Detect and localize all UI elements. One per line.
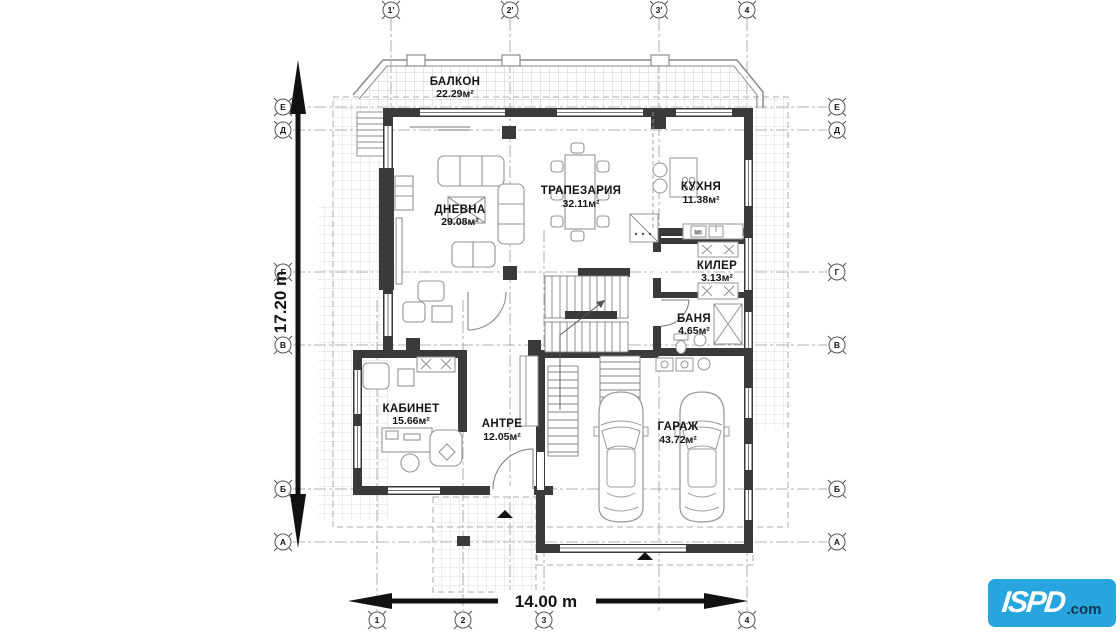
svg-text:1': 1'	[388, 5, 395, 15]
room-label-dining: ТРАПЕЗАРИЯ	[541, 185, 622, 197]
corner-desk	[430, 430, 462, 466]
balcony-structure	[353, 55, 763, 156]
room-label-garage: ГАРАЖ	[658, 421, 699, 433]
floor-plan-canvas: мс	[0, 0, 1120, 632]
svg-text:29.08м²: 29.08м²	[441, 216, 479, 228]
svg-text:Д: Д	[834, 125, 840, 135]
arrowhead-left	[348, 593, 392, 609]
svg-text:12.05м²: 12.05м²	[483, 431, 521, 443]
svg-text:Д: Д	[280, 125, 286, 135]
grid-marker: 4	[738, 611, 756, 629]
room-label-kitchen: КУХНЯ	[681, 181, 721, 193]
room-label-balcony: БАЛКОН	[430, 76, 480, 88]
svg-text:4: 4	[745, 5, 750, 15]
grid-marker: 2	[454, 611, 472, 629]
armchair	[363, 363, 389, 389]
car	[675, 392, 729, 522]
svg-text:11.38м²: 11.38м²	[683, 194, 720, 206]
svg-text:4: 4	[745, 615, 750, 625]
balcony-steps	[357, 112, 385, 156]
svg-text:2: 2	[461, 615, 466, 625]
logo[interactable]: ISPD .com	[988, 579, 1116, 627]
logo-suffix: .com	[1067, 601, 1102, 618]
grid-marker: 1	[368, 611, 386, 629]
garage-entrance-arrow	[637, 552, 653, 560]
svg-text:3.13м²: 3.13м²	[701, 272, 733, 284]
grid-marker: Е	[274, 98, 292, 116]
logo-brand: ISPD	[1001, 588, 1066, 618]
grid-marker: 3'	[650, 1, 668, 19]
floor-plan-drawing: мс	[0, 0, 1120, 632]
svg-text:3': 3'	[656, 5, 663, 15]
svg-text:Е: Е	[280, 102, 286, 112]
grid-marker: Д	[828, 121, 846, 139]
svg-text:43.72м²: 43.72м²	[659, 434, 697, 446]
svg-text:Е: Е	[834, 102, 840, 112]
appliance-label: мс	[694, 230, 701, 236]
stool	[653, 179, 667, 193]
stool	[653, 163, 667, 177]
room-label-living: ДНЕВНА	[435, 204, 486, 216]
hall-wardrobe	[520, 356, 538, 426]
arrowhead-right	[704, 593, 748, 609]
grid-marker: Б	[274, 480, 292, 498]
svg-text:А: А	[280, 537, 286, 547]
horizontal-dimension-label: 14.00 m	[515, 592, 577, 611]
balcony-floor	[359, 66, 757, 107]
vertical-dimension-label: 17.20 m	[271, 271, 290, 333]
room-label-office: КАБИНЕТ	[383, 403, 440, 415]
grid-marker: 4	[738, 1, 756, 19]
grid-marker: Г	[828, 263, 846, 281]
svg-text:3: 3	[542, 615, 547, 625]
room-label-hall: АНТРЕ	[482, 418, 523, 430]
balcony-pier	[407, 55, 425, 66]
room-label-pantry: КИЛЕР	[697, 260, 737, 272]
desk-chair	[401, 454, 419, 472]
balcony-pier	[651, 55, 669, 66]
grid-marker: Б	[828, 480, 846, 498]
svg-text:22.29м²: 22.29м²	[436, 88, 474, 100]
balcony-pier	[502, 55, 520, 66]
grid-marker: Д	[274, 121, 292, 139]
grid-marker: Е	[828, 98, 846, 116]
svg-text:32.11м²: 32.11м²	[563, 198, 600, 210]
grid-marker: 3	[535, 611, 553, 629]
grid-marker: А	[274, 533, 292, 551]
grid-marker: В	[828, 336, 846, 354]
svg-text:Г: Г	[835, 267, 840, 277]
svg-text:15.66м²: 15.66м²	[392, 415, 430, 427]
grid-marker: 2'	[501, 1, 519, 19]
svg-text:А: А	[834, 537, 840, 547]
svg-text:В: В	[834, 340, 840, 350]
grid-marker: В	[274, 336, 292, 354]
media-shelf	[395, 176, 413, 210]
arrowhead-up	[290, 60, 306, 114]
grid-marker: А	[828, 533, 846, 551]
svg-text:Б: Б	[834, 484, 840, 494]
grid-marker: 1'	[382, 1, 400, 19]
svg-text:В: В	[280, 340, 286, 350]
svg-text:Б: Б	[280, 484, 286, 494]
svg-text:4.65м²: 4.65м²	[678, 325, 710, 337]
living-room-furniture	[395, 156, 524, 322]
car	[594, 392, 648, 522]
room-label-bath: БАНЯ	[677, 313, 711, 325]
svg-text:2': 2'	[507, 5, 514, 15]
dimension-horizontal: 14.00 m	[348, 590, 748, 611]
svg-text:1: 1	[375, 615, 380, 625]
garage-cars	[594, 392, 729, 522]
arrowhead-down	[290, 494, 306, 548]
